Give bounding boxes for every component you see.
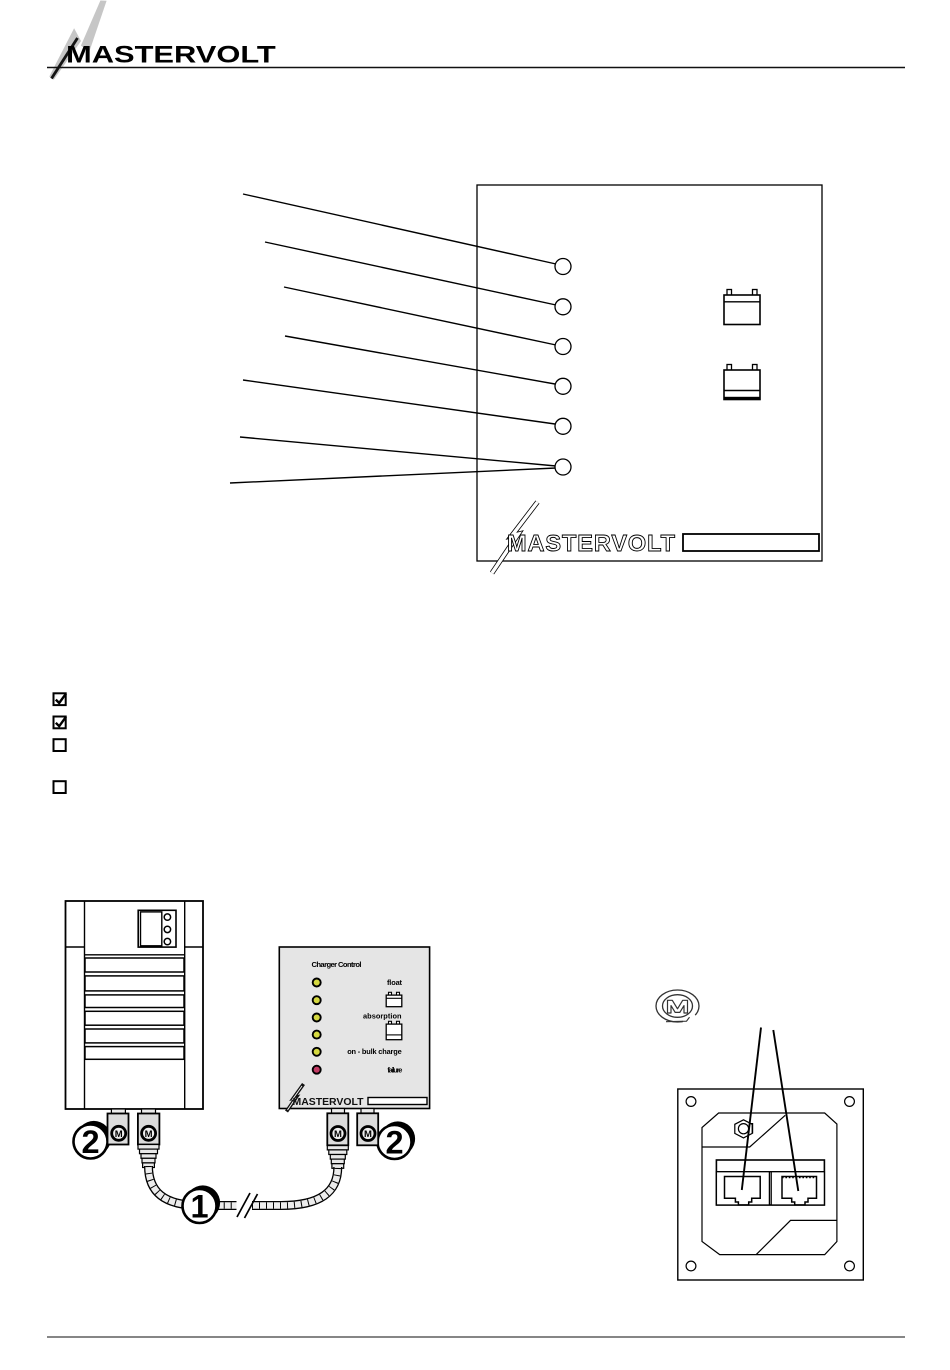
svg-text:M: M: [115, 1129, 123, 1140]
svg-text:on - bulk charge: on - bulk charge: [347, 1047, 402, 1056]
svg-text:failure: failure: [387, 1065, 402, 1074]
svg-text:MASTERVOLT: MASTERVOLT: [66, 41, 276, 68]
svg-text:MASTERVOLT: MASTERVOLT: [293, 1096, 365, 1108]
svg-text:MASTERVOLT: MASTERVOLT: [507, 530, 676, 556]
svg-text:M: M: [364, 1129, 372, 1140]
svg-text:2: 2: [385, 1124, 403, 1160]
svg-text:2: 2: [81, 1124, 99, 1160]
svg-text:float: float: [387, 978, 403, 987]
svg-text:M: M: [145, 1129, 153, 1140]
svg-text:1: 1: [190, 1188, 208, 1224]
svg-text:absorption: absorption: [363, 1012, 402, 1021]
svg-text:Charger Control: Charger Control: [312, 960, 362, 969]
svg-text:M: M: [334, 1129, 342, 1140]
